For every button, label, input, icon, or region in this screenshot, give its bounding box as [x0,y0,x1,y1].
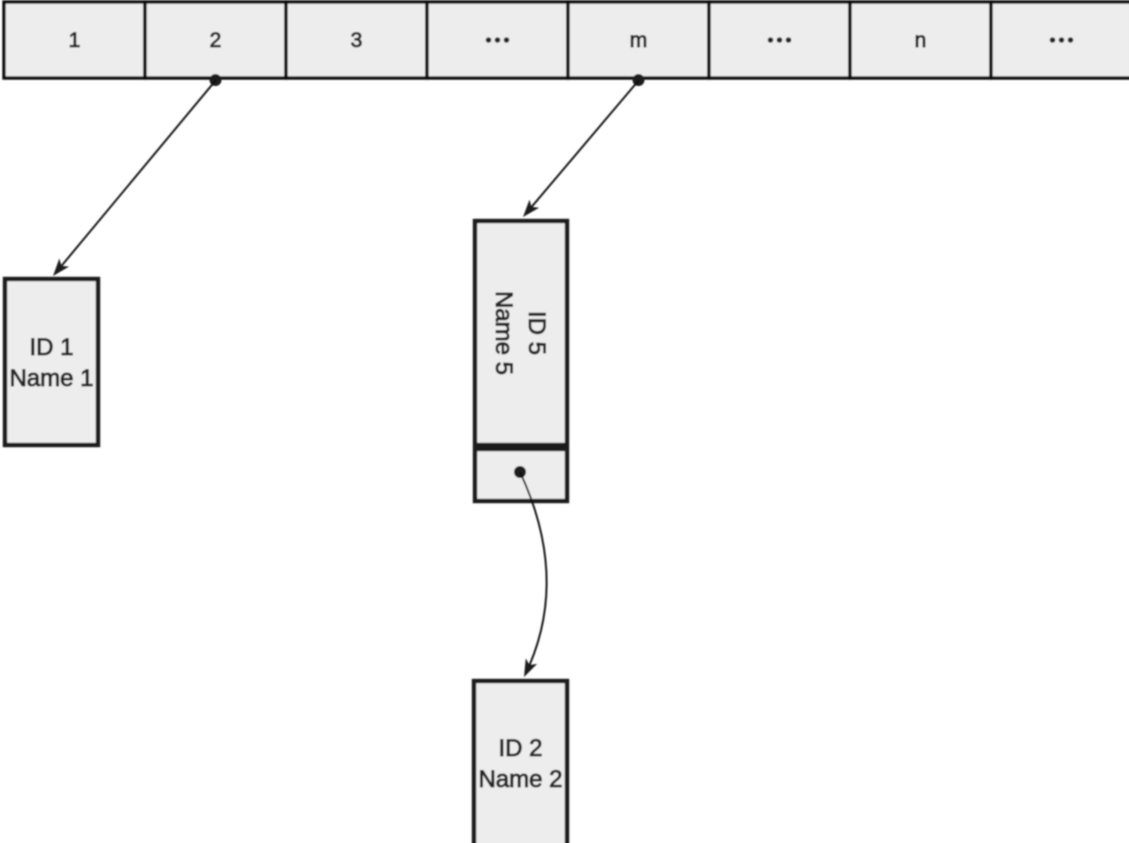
svg-text:3: 3 [351,29,363,52]
svg-text:ID 1: ID 1 [29,334,73,361]
svg-text:ID 2: ID 2 [498,735,542,762]
svg-text:2: 2 [210,29,222,52]
svg-text:1: 1 [69,29,81,52]
svg-text:m: m [630,29,648,52]
svg-text:ID 5: ID 5 [523,311,550,355]
svg-text:Name 5: Name 5 [490,291,517,375]
svg-text:n: n [915,29,927,52]
svg-text:Name 2: Name 2 [478,766,562,793]
svg-text:Name 1: Name 1 [9,365,93,392]
